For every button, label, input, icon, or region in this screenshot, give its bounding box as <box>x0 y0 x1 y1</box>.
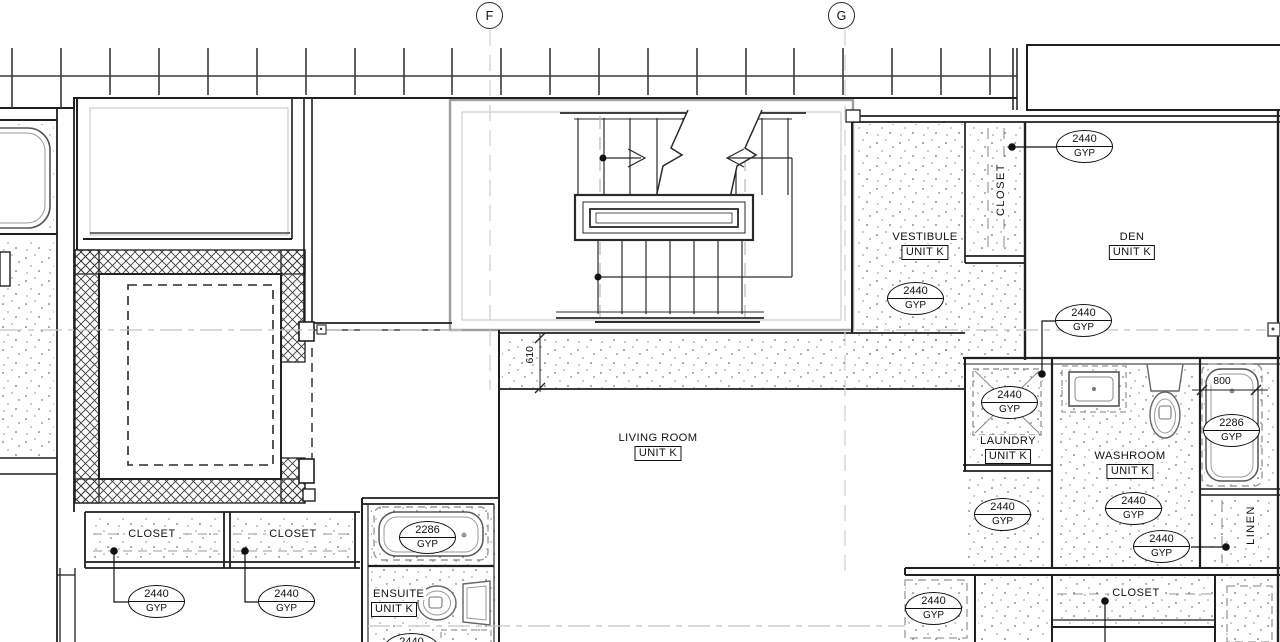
dimension-800: 800 <box>1211 375 1233 387</box>
ceiling-tag: 2440 GYP <box>1133 530 1190 563</box>
ceiling-height: 2440 <box>1056 305 1111 321</box>
unit-tag: UNIT K <box>1109 245 1155 260</box>
grid-letter: F <box>486 9 494 23</box>
closet-label-vertical: CLOSET <box>994 160 1008 219</box>
unit-tag: UNIT K <box>985 449 1031 464</box>
ceiling-tag: 2440 GYP <box>1055 304 1112 337</box>
closet-label: CLOSET <box>1109 587 1163 599</box>
room-label-vestibule: VESTIBULE UNIT K <box>890 231 959 260</box>
ceiling-height: 2440 <box>888 283 943 299</box>
dimension-610: 610 <box>524 346 536 364</box>
room-name: WASHROOM <box>1092 450 1167 462</box>
ceiling-tag: 2286 GYP <box>399 521 456 554</box>
ceiling-height: 2440 <box>906 593 961 609</box>
room-label-washroom: WASHROOM UNIT K <box>1092 450 1167 479</box>
room-name: LIVING ROOM <box>617 432 700 444</box>
closet-label: CLOSET <box>125 528 179 540</box>
ceiling-tag: 2440 GYP <box>974 498 1031 531</box>
grid-marker-f: F <box>476 2 503 29</box>
elevator-cab-face <box>99 274 281 479</box>
ceiling-height: 2286 <box>400 522 455 538</box>
ceiling-height: 2440 <box>975 499 1030 515</box>
linen-label: LINEN <box>1244 502 1258 548</box>
ceiling-height: 2440 <box>982 387 1037 403</box>
closet-label: CLOSET <box>266 528 320 540</box>
ceiling-height: 2440 <box>259 586 314 602</box>
stair <box>556 110 806 322</box>
room-label-ensuite: ENSUITE UNIT K <box>371 588 426 617</box>
room-name: DEN <box>1118 231 1147 243</box>
ceiling-tag: 2440 GYP <box>905 592 962 625</box>
ceiling-tag: 2440 GYP <box>128 585 185 618</box>
room-label-laundry: LAUNDRY UNIT K <box>978 435 1038 464</box>
unit-tag: UNIT K <box>635 446 681 461</box>
room-name: LAUNDRY <box>978 435 1038 447</box>
floor-plan: F G VESTIBULE UNIT K DEN UNIT K LIVING R… <box>0 0 1280 642</box>
ceiling-tag: 2440 GYP <box>258 585 315 618</box>
ceiling-height: 2440 <box>1106 493 1161 509</box>
ceiling-height: 2440 <box>129 586 184 602</box>
unit-tag: UNIT K <box>1107 464 1153 479</box>
room-label-living-room: LIVING ROOM UNIT K <box>617 432 700 461</box>
room-name: ENSUITE <box>371 588 426 600</box>
ceiling-tag: 2440 GYP <box>1056 130 1113 163</box>
ceiling-tag: 2440 GYP <box>887 282 944 315</box>
bathtub-left <box>0 128 50 228</box>
ceiling-tag: 2440 GYP <box>1105 492 1162 525</box>
unit-tag: UNIT K <box>371 602 417 617</box>
grid-marker-g: G <box>828 2 855 29</box>
unit-tag: UNIT K <box>902 245 948 260</box>
toilet-washroom <box>1147 364 1183 391</box>
ceiling-tag: 2440 GYP <box>981 386 1038 419</box>
ceiling-height: 2286 <box>1204 415 1259 431</box>
ceiling-height: 2440 <box>1134 531 1189 547</box>
grid-letter: G <box>837 9 847 23</box>
shaft-corner-block <box>303 489 315 501</box>
ceiling-tag: 2286 GYP <box>1203 414 1260 447</box>
room-name: VESTIBULE <box>890 231 959 243</box>
ceiling-height: 2440 <box>1057 131 1112 147</box>
room-label-den: DEN UNIT K <box>1109 231 1155 260</box>
